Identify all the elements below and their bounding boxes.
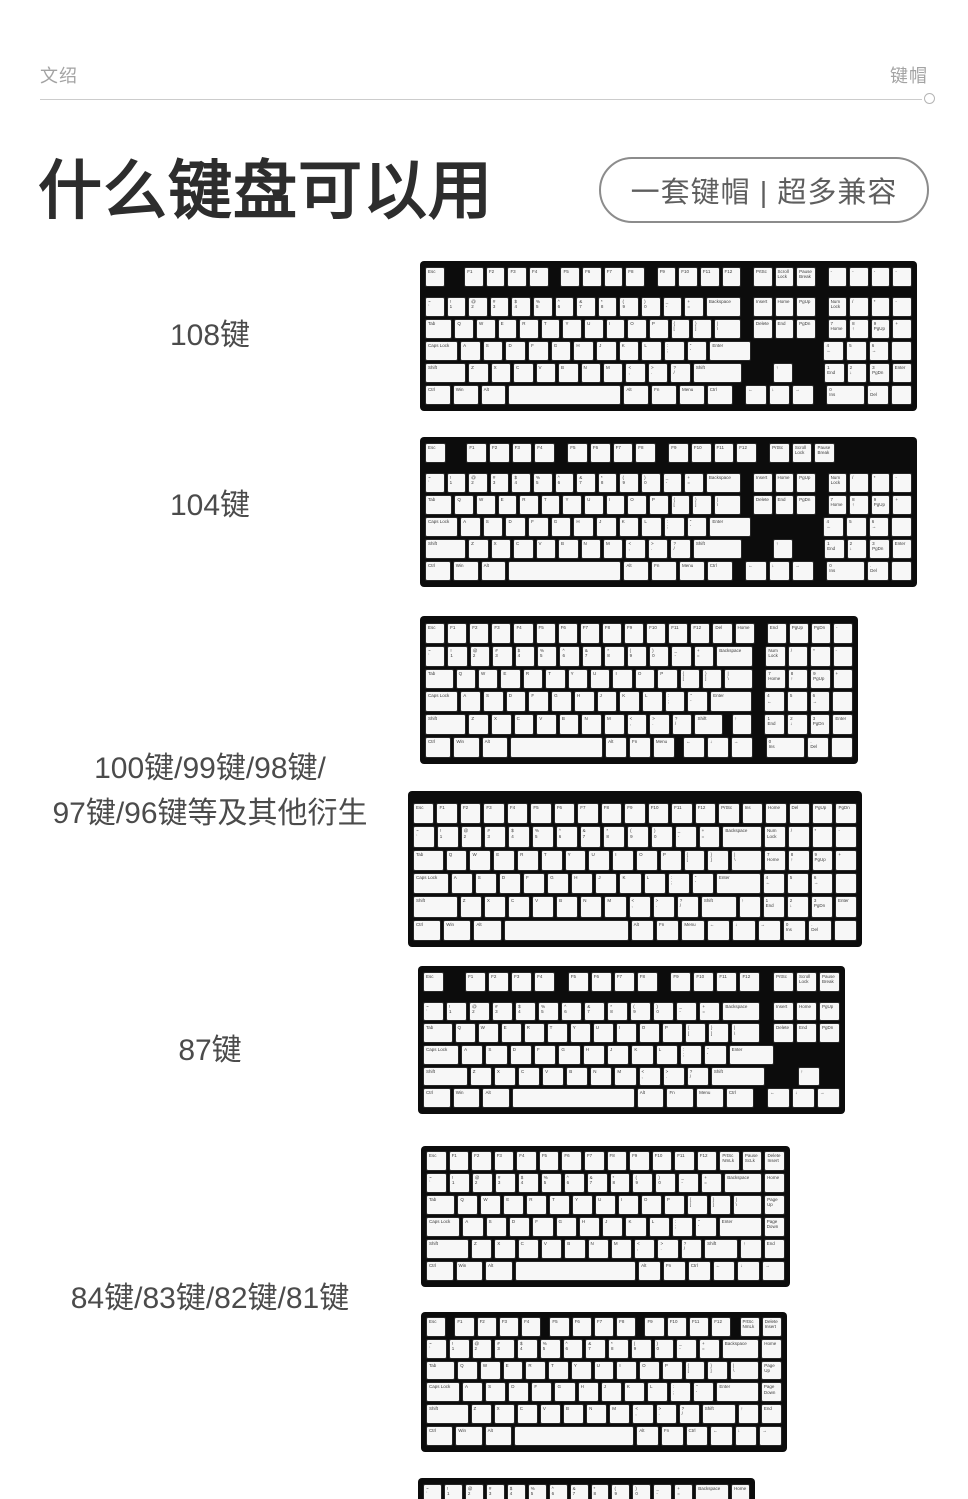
keycap: Y [568, 669, 588, 690]
keycap: S [483, 517, 504, 537]
keycap: Home [764, 1173, 785, 1193]
keycap: F9 [624, 803, 645, 824]
keycap: W [478, 1023, 499, 1043]
keycap: X [491, 714, 512, 735]
keycap: F2 [460, 803, 481, 824]
keycap: ! 1 [449, 1173, 470, 1193]
keycap: P [660, 850, 682, 871]
keycap: Esc [413, 803, 434, 824]
keycap: Del [712, 623, 732, 644]
keycap: Z [468, 363, 488, 383]
keycap: + = [684, 297, 704, 317]
keycap: T [545, 669, 565, 690]
keycap: A [460, 517, 481, 537]
keycap: P [664, 1195, 685, 1215]
keycap: Shift [694, 714, 723, 735]
keycap: 7 Home [764, 850, 786, 871]
keycap: O [641, 1195, 662, 1215]
keycap: Home [765, 803, 786, 824]
keycap: Alt [605, 737, 627, 758]
keycap: L [647, 1382, 668, 1402]
keycap: E [503, 1361, 524, 1381]
keycap: F [531, 1382, 552, 1402]
keycap: 0 Ins [826, 561, 865, 581]
keyboard-row: ~ `! 1@ 2# 3$ 4% 5^ 6& 7* 8( 9) 0_ -+ =B… [425, 646, 853, 667]
keycap: + [892, 495, 912, 515]
keycap: X [494, 1239, 515, 1259]
keycap: F2 [488, 972, 509, 992]
keycap: F11 [668, 623, 688, 644]
keycap: ↑ [739, 896, 761, 917]
keycap: → [758, 920, 781, 941]
keycap: } ] [702, 669, 722, 690]
keycap: PgUp [819, 1002, 840, 1022]
keycap: 7 Home [828, 319, 848, 339]
keycap: 2 ↓ [847, 539, 867, 559]
keycap: { [ [684, 850, 706, 871]
keycap: ( 9 [611, 1484, 630, 1499]
keycap [508, 385, 621, 405]
keycap: @ 2 [472, 1173, 493, 1193]
keycap: PgUp [796, 297, 816, 317]
keycap: End [775, 319, 795, 339]
keycap: PrtSc [753, 267, 773, 287]
keycap: E [501, 1023, 522, 1043]
keycap: D [499, 873, 521, 894]
keycap: @ 2 [461, 826, 483, 847]
keycap: # 3 [492, 646, 512, 667]
keycap: Z [460, 896, 482, 917]
keycap: PrtSc [773, 972, 794, 992]
keycap: O [636, 850, 658, 871]
keycap: F7 [594, 1317, 614, 1337]
keycap: F4 [516, 1151, 537, 1171]
keycap: L [642, 691, 663, 712]
keycap: Alt [481, 561, 507, 581]
keycap: N [590, 1067, 612, 1087]
keycap: G [551, 341, 572, 361]
keycap: B [558, 363, 578, 383]
keycap: { [ [687, 1195, 708, 1215]
keycap: Backspace [722, 826, 762, 847]
keycap: @ 2 [468, 297, 488, 317]
keycap: _ - [663, 297, 683, 317]
keycap: $ 4 [507, 1484, 526, 1499]
keycap: F7 [604, 267, 624, 287]
keycap: : ; [672, 1217, 693, 1237]
keycap [891, 385, 912, 405]
keycap: K [631, 1045, 653, 1065]
keyboard-row: TabQWERTYUIOP{ [} ]| \DeleteEndPgDn7 Hom… [425, 495, 912, 515]
keycap: Menu [653, 737, 675, 758]
keycap: % 5 [533, 473, 553, 493]
keycap: ? / [670, 363, 690, 383]
keycap: K [619, 341, 640, 361]
keyboard-row: ShiftZXCVBNM< ,> .? /Shift↑1 End2 ↓3 PgD… [425, 363, 912, 383]
keycap: F3 [483, 803, 504, 824]
keycap: F3 [511, 972, 532, 992]
keycap: < , [632, 1404, 653, 1424]
keycap: End [796, 1023, 817, 1043]
keycap: ↓ [769, 385, 790, 405]
keycap: _ - [676, 1339, 697, 1359]
keycap: H [574, 691, 595, 712]
keycap: C [513, 539, 533, 559]
keycap: F6 [590, 443, 611, 463]
keycap: Alt [485, 1426, 512, 1446]
keycap: W [469, 850, 491, 871]
keycap: ! 1 [446, 1002, 467, 1022]
keycap: { [ [680, 669, 700, 690]
keycap: * 8 [603, 826, 625, 847]
keycap: ? / [677, 896, 699, 917]
keycap: Shift [425, 539, 466, 559]
keycap: F1 [465, 972, 486, 992]
keycap: F12 [695, 803, 716, 824]
keyboard-row: Caps LockASDFGHJKL: ;" 'Enter4 ←56 → [425, 691, 853, 712]
keycap: * 8 [591, 1484, 610, 1499]
keycap: Y [570, 1023, 591, 1043]
keycap: F12 [711, 1317, 731, 1337]
keycap: D [505, 341, 526, 361]
keycap: Alt [473, 920, 501, 941]
product-detail-page: 文绍 键帽 什么键盘可以用 一套键帽 | 超多兼容 108键104键100键/9… [0, 0, 968, 1499]
keycap: Z [471, 1404, 492, 1424]
keycap: Pause ScLk [742, 1151, 763, 1171]
keycap: } ] [692, 319, 712, 339]
keycap: & 7 [570, 1484, 589, 1499]
keyboard-row: EscF1F2F3F4F5F6F7F8F9F10F11F12PrtScScrol… [423, 972, 840, 992]
keycap: D [506, 691, 527, 712]
keycap: F10 [648, 803, 669, 824]
keycap: Fn [651, 385, 677, 405]
keycap: Shift [701, 896, 737, 917]
keyboard-row: TabQWERTYUIOP{ [} ]| \DeleteEndPgDn [423, 1023, 840, 1043]
keycap: E [498, 495, 518, 515]
keycap: ( 9 [630, 1002, 651, 1022]
keyboard-row: CtrlWinAltAltFnMenu←↓→0 Ins. Del [413, 920, 857, 941]
keycap: > . [653, 896, 675, 917]
keycap: Win [453, 561, 479, 581]
keycap: F7 [580, 623, 600, 644]
keyboard-illustration-kb65: ~ `! 1@ 2# 3$ 4% 5^ 6& 7* 8( 9) 0_ -+ =B… [418, 1478, 755, 1499]
keycap: < , [625, 539, 645, 559]
keycap: Esc [425, 443, 446, 463]
keyboard-row: CtrlWinAltAltFnCtrl←↓→ [426, 1261, 785, 1281]
keycap: ← [683, 737, 705, 758]
keyboard-row: Caps LockASDFGHJKL: ;" 'Enter4 ←56 → [425, 341, 912, 361]
keycap: F12 [722, 267, 742, 287]
keycap: Enter [835, 896, 857, 917]
keycap: % 5 [537, 646, 557, 667]
keycap: S [485, 1382, 506, 1402]
keycap: & 7 [576, 473, 596, 493]
keycap: F10 [691, 443, 712, 463]
keycap: F2 [486, 267, 506, 287]
keycap: Delete [753, 495, 773, 515]
keyboard-row: CtrlWinAltAltFnMenuCtrl←↓→ [423, 1088, 840, 1108]
keycap: F12 [697, 1151, 718, 1171]
keycap: Ctrl [413, 920, 441, 941]
keycap: 8 ↑ [788, 669, 808, 690]
keycap: P [649, 495, 669, 515]
keycap: { [ [671, 319, 691, 339]
keycap: ~ ` [425, 297, 445, 317]
keycap: 1 End [824, 363, 844, 383]
keycap: _ - [653, 1484, 672, 1499]
keycap: E [503, 1195, 524, 1215]
keycap: M [614, 1067, 636, 1087]
keycap: # 3 [492, 1002, 513, 1022]
keycap: * [871, 297, 891, 317]
keycap: + [892, 319, 912, 339]
keycap: Y [571, 1361, 592, 1381]
keycap: Backspace [706, 473, 741, 493]
keycap: F2 [469, 623, 489, 644]
keycap: " ' [687, 341, 708, 361]
keycap: O [635, 669, 655, 690]
keyboard-row: ~ `! 1@ 2# 3$ 4% 5^ 6& 7* 8( 9) 0_ -+ =B… [425, 473, 912, 493]
keycap: I [606, 495, 626, 515]
keycap: F5 [549, 1317, 569, 1337]
keyboard-row: ShiftZXCVBNM< ,> .? /Shift↑1 End2 ↓3 PgD… [413, 896, 857, 917]
keycap: ! 1 [444, 1484, 463, 1499]
keycap: & 7 [580, 826, 602, 847]
keycap: P [662, 1361, 683, 1381]
keycap: F5 [539, 1151, 560, 1171]
keycap: F8 [635, 443, 656, 463]
keyboard-row: TabQWERTYUIOP{ [} ]| \Page Up [426, 1195, 785, 1215]
keycap: C [513, 363, 533, 383]
keycap: ) 0 [649, 646, 669, 667]
keycap: Fn [661, 1426, 684, 1446]
keycap: → [762, 1261, 785, 1281]
keycap: F1 [436, 803, 457, 824]
keycap: Win [453, 1088, 481, 1108]
keycap: U [590, 669, 610, 690]
keycap: F6 [554, 803, 575, 824]
keycap: J [597, 691, 618, 712]
keycap: Scroll Lock [792, 443, 813, 463]
keycap: J [607, 1045, 629, 1065]
keycap: F12 [736, 443, 757, 463]
keycap: F4 [534, 972, 555, 992]
keycap: F6 [591, 972, 612, 992]
keycap: 1 End [824, 539, 844, 559]
keyboard-count-label-line: 97键/96键等及其他衍生 [10, 791, 410, 836]
keycap: U [593, 1023, 614, 1043]
keycap: . Del [808, 920, 831, 941]
keycap: R [525, 1361, 546, 1381]
keycap: R [524, 1023, 545, 1043]
keyboard-count-label: 100键/99键/98键/97键/96键等及其他衍生 [10, 746, 410, 836]
keyboard-row: TabQWERTYUIOP{ [} ]| \DeleteEndPgDn7 Hom… [425, 319, 912, 339]
keycap: E [500, 669, 520, 690]
keyboard-row: EscF1F2F3F4F5F6F7F8F9F10F11F12PrtScInsHo… [413, 803, 857, 824]
keycap: * [871, 473, 891, 493]
keycap: V [540, 1404, 561, 1424]
keycap: Backspace [695, 1484, 729, 1499]
keycap: PgUp [789, 623, 809, 644]
keycap: S [486, 1217, 507, 1237]
keycap: Menu [679, 561, 705, 581]
keycap: { [ [685, 1361, 706, 1381]
keycap: F8 [637, 972, 658, 992]
keycap: } ] [692, 495, 712, 515]
keycap: Tab [413, 850, 444, 871]
keycap: { [ [685, 1023, 706, 1043]
keycap: Shift [702, 1404, 736, 1424]
keyboard-row: CtrlWinAltAltFnMenuCtrl←↓→0 Ins. Del [425, 561, 912, 581]
keycap: F6 [582, 267, 602, 287]
keycap: Page Down [761, 1382, 782, 1402]
keycap: O [627, 495, 647, 515]
keycap: I [612, 669, 632, 690]
keycap: . Del [867, 561, 888, 581]
keyboard-row: Caps LockASDFGHJKL: ;" 'Enter [423, 1045, 840, 1065]
keycap: Home [775, 473, 795, 493]
keycap: Alt [637, 1088, 665, 1108]
keycap: + = [694, 646, 714, 667]
keycap: Home [796, 1002, 817, 1022]
keycap: Delete [753, 319, 773, 339]
keycap: → [731, 737, 753, 758]
keycap: ← [707, 920, 730, 941]
keycap: 2 ↓ [847, 363, 867, 383]
keycap: 5 [787, 691, 808, 712]
keycap: Alt [482, 1088, 510, 1108]
keyboard-row: ~ `! 1@ 2# 3$ 4% 5^ 6& 7* 8( 9) 0_ -+ =B… [425, 297, 912, 317]
keycap: - [871, 267, 891, 287]
keycap: W [480, 1361, 501, 1381]
keycap: R [523, 669, 543, 690]
keycap: 4 ← [823, 517, 844, 537]
keycap: Ctrl [426, 1261, 454, 1281]
keycap: PrtSc [718, 803, 739, 824]
keycap: @ 2 [470, 646, 490, 667]
keyboard-row: Caps LockASDFGHJKL: ;" 'EnterPage Down [426, 1382, 782, 1402]
keycap: - [892, 473, 912, 493]
keycap: Pause Break [796, 267, 816, 287]
keycap: N [581, 539, 601, 559]
keycap: M [609, 1404, 630, 1424]
keycap: F10 [646, 623, 666, 644]
keycap: → [759, 1426, 782, 1446]
keycap: Home [761, 1339, 782, 1359]
keycap: + = [699, 1339, 720, 1359]
keycap: PgDn [796, 495, 816, 515]
keycap: End [761, 1404, 782, 1424]
keycap: Alt [623, 561, 649, 581]
keycap: ↓ [792, 1088, 815, 1108]
keycap: F8 [616, 1317, 636, 1337]
keycap: Esc [425, 267, 445, 287]
keycap: | \ [730, 1361, 759, 1381]
keycap: A [462, 1382, 483, 1402]
keycap: } ] [707, 1361, 728, 1381]
keycap: C [518, 1067, 540, 1087]
keycap: B [564, 1239, 585, 1259]
keycap: ↑ [773, 363, 793, 383]
keycap: PrtSc [769, 443, 790, 463]
keycap: ? / [670, 539, 690, 559]
keycap: C [508, 896, 530, 917]
keyboard-count-label-line: 87键 [10, 1028, 410, 1073]
keycap: ↓ [769, 561, 790, 581]
keycap: ← [713, 1261, 736, 1281]
keycap: ( 9 [627, 646, 647, 667]
keycap: 9 PgUp [810, 669, 830, 690]
keycap: 3 PgDn [811, 896, 833, 917]
keyboard-row: EscF1F2F3F4F5F6F7F8F9F10F11F12PrtSc NmLk… [426, 1317, 782, 1337]
keycap: F11 [700, 267, 720, 287]
keycap: T [547, 1023, 568, 1043]
keycap: 3 PgDn [869, 539, 889, 559]
keycap: Delete Insert [764, 1151, 785, 1171]
keycap: H [573, 341, 594, 361]
keycap: ~ ` [425, 473, 445, 493]
keycap: Enter [892, 363, 912, 383]
keyboard-row: ~ `! 1@ 2# 3$ 4% 5^ 6& 7* 8( 9) 0_ -+ =B… [423, 1002, 840, 1022]
keycap: N [580, 896, 602, 917]
keycap: ^ 6 [561, 1002, 582, 1022]
keyboard-illustration-kb87: EscF1F2F3F4F5F6F7F8F9F10F11F12PrtScScrol… [418, 966, 845, 1114]
keyboard-row: ShiftZXCVBNM< ,> .? /Shift↑1 End2 ↓3 PgD… [425, 714, 853, 735]
keycap: End [775, 495, 795, 515]
keycap: R [519, 319, 539, 339]
keycap: Ctrl [425, 737, 451, 758]
keycap: Alt [481, 385, 507, 405]
keycap: - [835, 826, 857, 847]
keycap: ^ 6 [556, 826, 578, 847]
keycap: * [810, 646, 830, 667]
keycap: Fn [656, 920, 679, 941]
keycap: Esc [423, 972, 444, 992]
keycap: D [510, 1045, 532, 1065]
keyboard-row: CtrlWinAltAltFnMenuCtrl←↓→0 Ins. Del [425, 385, 912, 405]
keyboard-illustration-kb96b: EscF1F2F3F4F5F6F7F8F9F10F11F12PrtScInsHo… [408, 791, 862, 947]
keycap: Alt [631, 920, 654, 941]
keycap: Ctrl [423, 1088, 451, 1108]
keycap: Tab [425, 319, 452, 339]
keycap: Enter [716, 873, 761, 894]
keycap: B [558, 539, 578, 559]
keycap: ↓ [707, 737, 729, 758]
keycap [891, 341, 912, 361]
keycap: < , [629, 896, 651, 917]
keycap: PgDn [835, 803, 856, 824]
compatibility-badge: 一套键帽 | 超多兼容 [599, 157, 929, 223]
keycap: . Del [807, 737, 829, 758]
keycap: F4 [521, 1317, 541, 1337]
keycap: } ] [710, 1195, 731, 1215]
keycap: F1 [449, 1151, 470, 1171]
keycap: → [792, 385, 813, 405]
keycap: PgDn [819, 1023, 840, 1043]
keycap: S [475, 873, 497, 894]
keycap: 2 ↓ [787, 896, 809, 917]
keycap: ) 0 [655, 1173, 676, 1193]
keycap: A [460, 691, 481, 712]
keycap: End [767, 623, 787, 644]
keycap: Shift [425, 363, 466, 383]
keycap: F5 [536, 623, 556, 644]
keycap: W [480, 1195, 501, 1215]
keycap: ↓ [732, 920, 755, 941]
keycap: - [892, 297, 912, 317]
keycap: 8 ↑ [849, 495, 869, 515]
keycap: G [551, 517, 572, 537]
